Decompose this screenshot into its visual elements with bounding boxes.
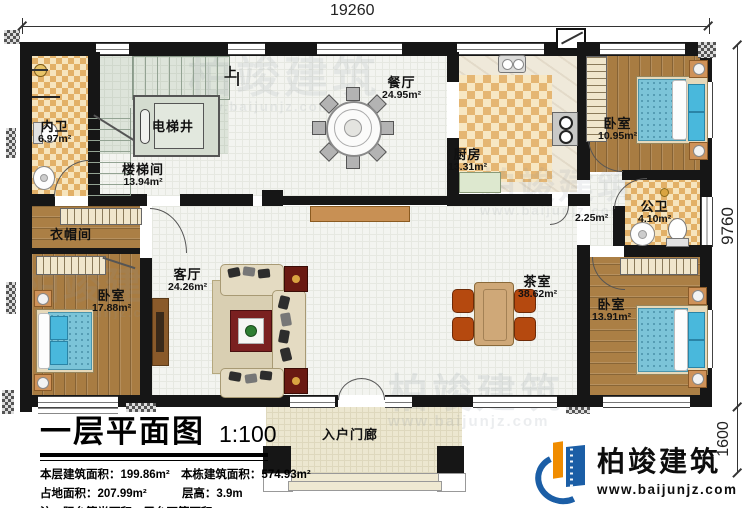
- bed-quilt: [688, 84, 705, 112]
- window-top: [600, 43, 685, 55]
- sink-drain: [638, 230, 647, 239]
- tea-table-grain: [483, 289, 507, 341]
- burner: [559, 130, 573, 144]
- wall-segment: [447, 194, 552, 206]
- logo-building-orange: [553, 441, 563, 478]
- room-label-hallway: 2.25m²: [575, 213, 608, 224]
- window-bottom: [290, 396, 335, 408]
- bed-pillow: [672, 80, 687, 140]
- dimension-right-height: 9760: [718, 196, 738, 256]
- elevator-counterweight: [140, 109, 150, 144]
- tea-chair: [452, 317, 474, 341]
- bath-sink: [33, 166, 55, 190]
- pbath-toilet-tank: [666, 238, 689, 247]
- nightstand: [34, 374, 52, 391]
- hatch-mark: [4, 30, 20, 44]
- stair-flight-top: [132, 56, 230, 100]
- logo-icon: [535, 438, 591, 498]
- sofa-cushion: [260, 370, 273, 380]
- window-top: [317, 43, 402, 55]
- pbath-sink: [630, 222, 655, 246]
- bed-quilt: [688, 340, 705, 368]
- title-block: 一层平面图 1:100 本层建筑面积：199.86m² 本栋建筑面积：574.9…: [40, 406, 280, 508]
- sofa-cushion: [258, 268, 271, 278]
- window-right: [701, 197, 713, 247]
- room-label-kitchen: 厨房 13.31m²: [448, 148, 487, 173]
- plan-scale: 1:100: [219, 421, 277, 448]
- side-table: [284, 368, 308, 394]
- room-label-porch: 入户门廊: [322, 428, 378, 442]
- tea-table: [474, 282, 514, 346]
- room-label-bedroom-left: 卧室 17.88m²: [92, 289, 131, 314]
- dining-chair: [346, 155, 360, 169]
- window-bottom: [385, 396, 412, 408]
- wall-segment: [568, 194, 590, 206]
- dining-chair: [346, 87, 360, 101]
- sofa-cushion: [280, 312, 292, 327]
- nightstand: [34, 290, 52, 307]
- logo-company-name: 柏竣建筑: [597, 440, 738, 480]
- wall-segment: [180, 194, 253, 206]
- wall-kitchen-left: [447, 52, 459, 82]
- lamp: [292, 377, 300, 385]
- stat-total-area: 本栋建筑面积：574.93m²: [181, 469, 311, 481]
- side-table: [284, 266, 308, 292]
- bed-quilt: [50, 341, 68, 365]
- room-label-inner-bathroom: 内卫 6.97m²: [38, 120, 71, 145]
- wardrobe-cloakroom: [60, 208, 142, 225]
- wall-bedroom-left-right: [140, 258, 152, 396]
- lamp: [292, 275, 300, 283]
- wardrobe-bedroom-left: [36, 256, 106, 275]
- dimension-end: [22, 18, 23, 34]
- wall-segment: [283, 196, 447, 205]
- hatch-mark: [2, 390, 14, 414]
- bed-quilt: [50, 316, 68, 340]
- dining-table: [326, 101, 382, 157]
- logo-building-blue: [566, 445, 585, 487]
- hatch-mark: [698, 42, 716, 58]
- nightstand: [689, 142, 708, 160]
- floor-plan-canvas: 柏竣建筑 www.baijunjz.com 柏竣建筑 www.baijunjz.…: [0, 0, 750, 508]
- dimension-end: [709, 18, 710, 34]
- potted-plant: [245, 325, 257, 337]
- bed-quilt: [688, 312, 705, 340]
- nightstand: [688, 287, 707, 305]
- stat-footprint: 占地面积：207.99m²: [40, 488, 147, 500]
- room-label-dining: 餐厅 24.95m²: [382, 76, 421, 101]
- sink-drain: [40, 174, 48, 182]
- tv-cabinet: [152, 298, 169, 366]
- stat-storey-height: 层高：3.9m: [182, 488, 243, 500]
- sofa-cushion: [244, 373, 257, 384]
- shower-head: [34, 64, 47, 77]
- dimension-line-top: [22, 26, 710, 27]
- hatch-mark: [566, 407, 590, 414]
- window-bottom: [473, 396, 557, 408]
- company-logo: 柏竣建筑 www.baijunjz.com: [505, 438, 745, 500]
- bed-quilt: [688, 112, 705, 141]
- pbath-light: [660, 188, 669, 197]
- wall-bedroom-tr-bottom: [622, 170, 712, 180]
- window-top: [457, 43, 544, 55]
- bed-pillow: [674, 309, 688, 371]
- bath-partition: [32, 96, 60, 98]
- title-underline: [40, 453, 268, 461]
- room-label-bedroom-bottomright: 卧室 13.91m²: [592, 298, 631, 323]
- window-top: [228, 43, 265, 55]
- logo-website: www.baijunjz.com: [597, 482, 738, 497]
- bed-pillow: [38, 313, 50, 369]
- dining-chair: [380, 121, 394, 135]
- sofa-cushion: [242, 266, 255, 277]
- window-bottom: [603, 396, 690, 408]
- wall-pier: [262, 190, 283, 206]
- room-label-bedroom-topright: 卧室 10.95m²: [598, 117, 637, 142]
- wall-pbath-left: [613, 206, 625, 246]
- wardrobe-bedroom-bottomright: [620, 258, 698, 275]
- dimension-top-width: 19260: [330, 2, 375, 20]
- wall-cloak-divider: [32, 248, 140, 254]
- porch-pillar: [437, 446, 464, 473]
- sofa-cushion: [228, 371, 241, 382]
- kitchen-sink: [498, 55, 526, 73]
- sink-basin: [513, 59, 524, 70]
- stat-floor-area: 本层建筑面积：199.86m²: [40, 469, 170, 481]
- shower-arm: [32, 69, 48, 71]
- room-label-tea: 茶室 38.62m²: [518, 275, 557, 300]
- nightstand: [688, 370, 707, 388]
- room-label-stairwell: 楼梯间 13.94m²: [122, 163, 164, 188]
- nightstand: [689, 60, 708, 78]
- lazy-susan: [344, 119, 362, 137]
- porch-step: [288, 481, 442, 491]
- wall-bedroom-br-left: [577, 257, 590, 396]
- dining-chair: [312, 121, 326, 135]
- kitchen-stove: [552, 112, 578, 146]
- burner: [559, 116, 573, 130]
- tv: [156, 312, 164, 352]
- hatch-mark: [6, 282, 16, 314]
- wall-h3: [577, 245, 590, 257]
- console-table: [310, 206, 410, 222]
- wall-left: [20, 42, 32, 412]
- tea-chair: [514, 317, 536, 341]
- room-label-public-bathroom: 公卫 4.10m²: [638, 200, 671, 225]
- hatch-mark: [6, 128, 16, 158]
- plan-title: 一层平面图: [40, 406, 205, 451]
- tea-chair: [452, 289, 474, 313]
- room-label-living: 客厅 24.26m²: [168, 268, 207, 293]
- stairs-up-label: 上: [224, 66, 238, 80]
- room-label-cloakroom: 衣帽间: [50, 228, 92, 242]
- sink-basin: [502, 59, 513, 70]
- kitchen-cabinet: [459, 172, 501, 193]
- window-top: [96, 43, 129, 55]
- wall-segment: [20, 194, 55, 206]
- room-label-elevator: 电梯井: [152, 120, 194, 134]
